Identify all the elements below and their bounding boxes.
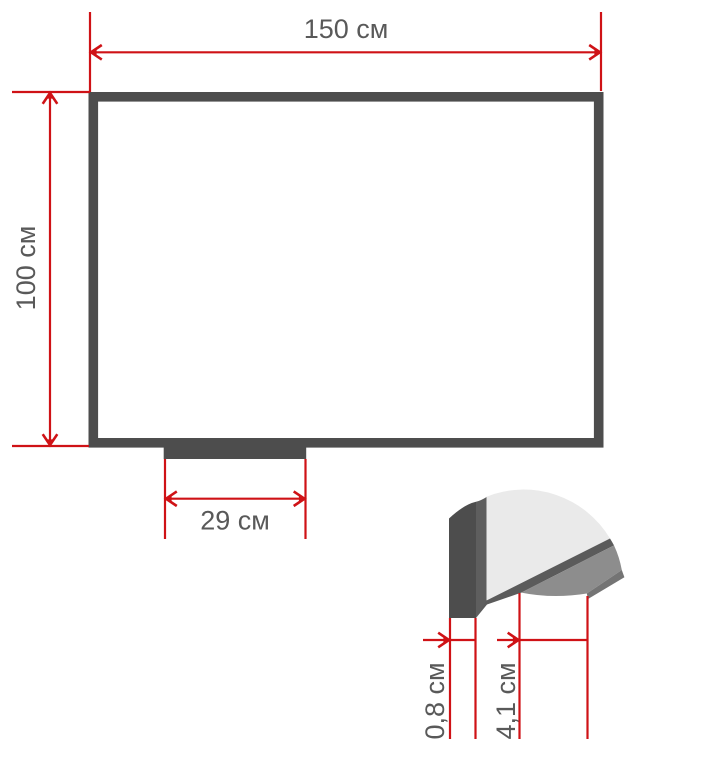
svg-text:150 см: 150 см: [304, 14, 389, 44]
svg-text:0,8 см: 0,8 см: [420, 662, 450, 739]
svg-text:29 см: 29 см: [200, 506, 270, 536]
svg-text:4,1 см: 4,1 см: [491, 662, 521, 739]
svg-text:100 см: 100 см: [11, 226, 41, 311]
